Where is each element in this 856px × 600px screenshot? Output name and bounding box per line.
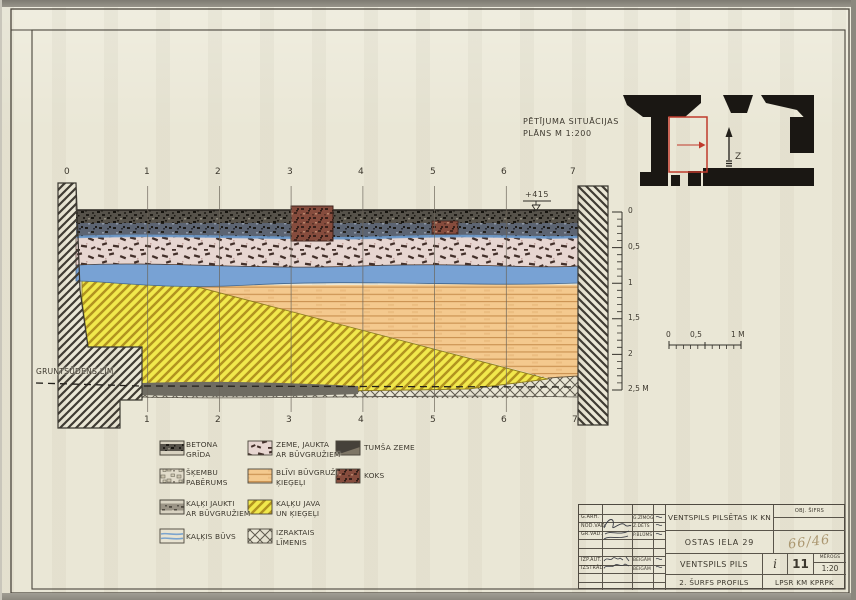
obj-sifrs-cell: OBJ. ŠIFRS xyxy=(774,505,845,531)
role-label: G.ARH. xyxy=(581,515,599,520)
scale-label: MĒROGS xyxy=(820,555,840,560)
station-label-top: 6 xyxy=(501,167,507,177)
object-cell: VENTSPILS PILS xyxy=(666,554,763,575)
hscale-label: 0,5 xyxy=(690,331,702,340)
stage-letter: i xyxy=(773,557,777,571)
station-label-top: 1 xyxy=(144,167,150,177)
obj-sifrs-box: OBJ. ŠIFRS xyxy=(774,505,845,518)
station-label-top: 7 xyxy=(570,167,576,177)
org-name: LPSR KM KPRPK xyxy=(775,579,834,587)
station-label-bottom: 5 xyxy=(430,415,436,425)
wood-patch-large xyxy=(291,206,333,241)
legend-line: KAĻĶI JAUKTI xyxy=(186,499,250,509)
legend-line: UN ĶIEĢEĻI xyxy=(276,509,320,519)
station-label-top: 3 xyxy=(287,167,293,177)
scale-label-box: MĒROGS xyxy=(814,554,846,563)
drawing-title: 2. ŠURFS PROFILS xyxy=(679,578,748,587)
sheet-number-cell: 11 xyxy=(788,554,814,575)
role-label2: BEIGĀM xyxy=(633,567,651,572)
swatch-koks xyxy=(336,469,360,483)
role-label2: G.ZĪMOG xyxy=(633,516,653,521)
legend-line: KAĻĶIS BŪVS xyxy=(186,532,236,542)
swatch-kalki-jaukti xyxy=(160,500,184,514)
legend-label-betona-grida: BETONA GRĪDA xyxy=(186,440,218,459)
legend-label-skembu-paberums: ŠĶEMBU PABĒRUMS xyxy=(186,468,228,487)
vscale-label: 0,5 xyxy=(628,243,640,252)
vscale-label: 1 xyxy=(628,279,633,288)
legend-label-kalki-jaukti: KAĻĶI JAUKTI AR BŪVGRUŽIEM xyxy=(186,499,250,518)
station-label-top: 0 xyxy=(64,167,70,177)
vscale-label: 1,5 xyxy=(628,314,640,323)
station-label-bottom: 4 xyxy=(358,415,364,425)
hscale-label: 0 xyxy=(666,331,671,340)
object-name: VENTSPILS PILS xyxy=(680,560,748,569)
vscale-label: 2 xyxy=(628,350,633,359)
vscale-label: 0 xyxy=(628,207,633,216)
situation-plan-title-line1: PĒTĪJUMA SITUĀCIJAS xyxy=(523,117,619,126)
legend-label-tumsa-zeme: TUMŠA ZEME xyxy=(364,443,415,453)
role-label2: Z.DĒTS xyxy=(633,524,650,529)
drawing-title-cell: 2. ŠURFS PROFILS xyxy=(666,575,763,590)
legend-line: ĶIEĢEĻI xyxy=(276,478,338,488)
wood-patch-small xyxy=(432,221,458,234)
vscale-label: 2,5 M xyxy=(628,385,649,394)
swatch-skembu-paberums xyxy=(160,469,184,483)
legend-label-zeme-jaukta: ZEME, JAUKTA AR BŪVGRUŽIEM xyxy=(276,440,340,459)
legend-label-blivi-buvgruzi: BLĪVI BŪVGRUŽI ĶIEĢEĻI xyxy=(276,468,338,487)
address-cell: OSTAS IELA 29 xyxy=(666,531,774,554)
stage-cell: i xyxy=(763,554,788,575)
elevation-mark: +415 xyxy=(525,190,549,199)
horizontal-scale-bar xyxy=(669,341,741,349)
roles-grid: G.ARH. NOD.VAD. GR.VAD. IZP.AUT. IZSTRĀD… xyxy=(579,505,666,590)
station-label-bottom: 3 xyxy=(286,415,292,425)
scan-edge-bottom xyxy=(0,593,856,600)
situation-plan xyxy=(623,95,814,186)
address-text: OSTAS IELA 29 xyxy=(685,538,754,547)
legend-label-kalkis-buvs: KAĻĶIS BŪVS xyxy=(186,532,236,542)
scanned-drawing-sheet: PĒTĪJUMA SITUĀCIJAS PLĀNS M 1:200 Z 0 1 … xyxy=(0,0,856,600)
signature-scribble xyxy=(654,512,665,542)
swatch-izraktais-limenis xyxy=(248,529,272,543)
vertical-scale-ruler xyxy=(612,212,622,390)
role-label: GR.VAD. xyxy=(581,532,602,537)
north-arrow-icon xyxy=(726,127,733,166)
legend-line: TUMŠA ZEME xyxy=(364,443,415,453)
legend-label-kalku-java: KAĻĶU JAVA UN ĶIEĢEĻI xyxy=(276,499,320,518)
legend-line: AR BŪVGRUŽIEM xyxy=(186,509,250,519)
legend-line: ZEME, JAUKTA xyxy=(276,440,340,450)
hscale-label: 1 M xyxy=(731,331,745,340)
signature-scribble xyxy=(654,554,665,572)
legend-line: GRĪDA xyxy=(186,450,218,460)
legend-line: KOKS xyxy=(364,471,384,481)
swatch-kalkis-buvs xyxy=(160,529,184,543)
role-label2: P.BLŪMS xyxy=(633,533,652,538)
role-label: IZP.AUT. xyxy=(581,558,602,563)
station-label-bottom: 6 xyxy=(501,415,507,425)
swatch-zeme-jaukta xyxy=(248,441,272,455)
signature-scribble xyxy=(601,512,633,542)
legend-line: PABĒRUMS xyxy=(186,478,228,488)
obj-code-cell: 66/46 xyxy=(774,531,845,554)
sheet-number: 11 xyxy=(792,557,809,571)
legend-line: KAĻĶU JAVA xyxy=(276,499,320,509)
layer-kalkis-buvs xyxy=(76,264,578,287)
station-label-top: 4 xyxy=(358,167,364,177)
situation-plan-title-line2: PLĀNS M 1:200 xyxy=(523,129,592,138)
plan-walls xyxy=(623,95,814,186)
title-block: G.ARH. NOD.VAD. GR.VAD. IZP.AUT. IZSTRĀD… xyxy=(578,504,845,589)
obj-sifrs-label: OBJ. ŠIFRS xyxy=(795,508,824,514)
swatch-kalku-java xyxy=(248,500,272,514)
client-cell: VENTSPILS PILSĒTAS IK KN xyxy=(666,505,774,531)
legend-line: AR BŪVGRUŽIEM xyxy=(276,450,340,460)
legend-line: BLĪVI BŪVGRUŽI xyxy=(276,468,338,478)
scan-edge-top xyxy=(0,0,856,7)
client-name: VENTSPILS PILSĒTAS IK KN xyxy=(668,513,771,522)
legend-line: LĪMENIS xyxy=(276,538,315,548)
groundwater-label: GRUNTSŪDENS LĪM. xyxy=(36,368,116,377)
scale-cell: MĒROGS 1:20 xyxy=(814,554,846,575)
station-label-bottom: 7 xyxy=(572,415,578,425)
station-label-bottom: 1 xyxy=(144,415,150,425)
north-label: Z xyxy=(735,152,741,162)
scan-edge-left xyxy=(0,0,2,600)
station-label-bottom: 2 xyxy=(215,415,221,425)
legend-line: IZRAKTAIS xyxy=(276,528,315,538)
swatch-blivi-buvgruzi xyxy=(248,469,272,483)
org-cell: LPSR KM KPRPK xyxy=(763,575,846,590)
swatch-betona-grida xyxy=(160,441,184,455)
legend-label-koks: KOKS xyxy=(364,471,384,481)
legend-line: BETONA xyxy=(186,440,218,450)
section-direction-arrow xyxy=(677,142,706,149)
scale-value-box: 1:20 xyxy=(814,563,846,576)
legend-line: ŠĶEMBU xyxy=(186,468,228,478)
obj-code-handwritten: 66/46 xyxy=(788,532,832,552)
station-label-top: 5 xyxy=(430,167,436,177)
scan-edge-right xyxy=(851,0,856,600)
legend-label-izraktais-limenis: IZRAKTAIS LĪMENIS xyxy=(276,528,315,547)
signature-scribble xyxy=(601,554,633,573)
scale-value: 1:20 xyxy=(822,564,839,573)
role-label2: BEIGĀM xyxy=(633,558,651,563)
station-label-top: 2 xyxy=(215,167,221,177)
right-wall-hatch xyxy=(578,186,608,425)
